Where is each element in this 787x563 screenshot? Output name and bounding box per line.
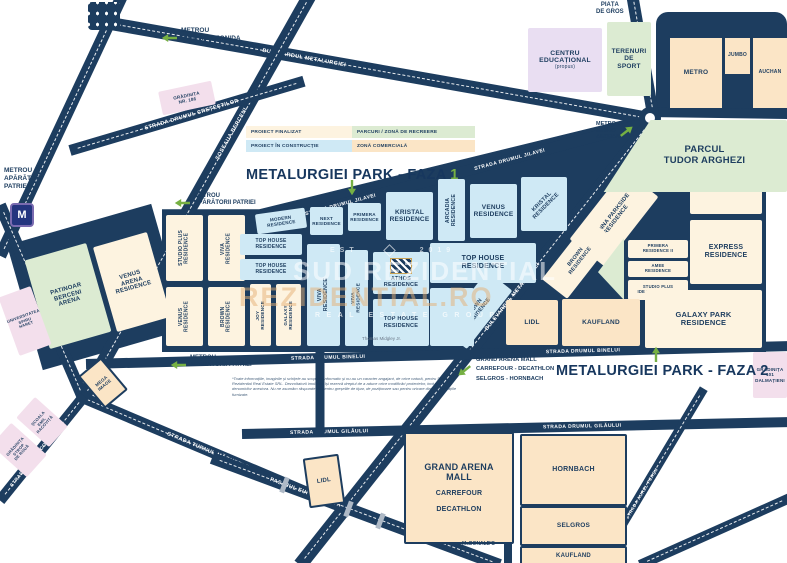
block-viva-residence-2: VIVA RESIDENCE [307,244,340,346]
block-top-house-residence: TOP HOUSE RESIDENCE [240,259,302,280]
block-label: PRIMERA RESIDENCE [350,212,379,222]
block-label: JOY RESIDENCE [255,301,265,330]
annotation-text: McDONALD'S [462,541,495,547]
road-label: STRADA DRUMUL GILĂULUI [290,428,369,436]
block-galaxy-park-residence: GALAXY PARK RESIDENCE [645,290,762,348]
block-galaxy-residence: GALAXY RESIDENCE [276,284,301,346]
block-label: NEXT RESIDENCE [312,216,341,226]
disclaimer-body: *Toate informațiile, imaginile și schițe… [232,376,456,397]
block-label: KRISTAL RESIDENCE [527,187,560,220]
block-auchan: AUCHAN [751,36,787,110]
block-kaufland: KAUFLAND [562,299,640,346]
block-grand-arena-mall: GRAND ARENA MALL CARREFOUR DECATHLON [404,432,514,544]
annotation-text: METROU APĂRĂTORI PATRIEI [4,167,43,190]
block-label: SELGROS [557,522,590,529]
block-label: GRĂDINIȚA STROP DE ROUĂ [6,437,32,464]
annotation-text: METRO JUMBO AUCHAN [596,121,620,140]
block-express-residence: EXPRESS RESIDENCE [690,220,762,284]
block-label: VENUS RESIDENCE [474,204,514,219]
arrow-up-icon [651,346,661,362]
title-text: METALURGIEI PARK - FAZA 2 [556,363,769,379]
map-canvas: BULEVARDUL METALURGIEI ȘOSEAUA BERCENI S… [0,0,787,563]
block-hornbach: HORNBACH [520,434,627,506]
block-kristal-residence-2: KRISTAL RESIDENCE [521,177,567,231]
block-centru-educational: CENTRU EDUCAȚIONAL (propus) [528,28,602,92]
block-label: TOP HOUSE RESIDENCE [384,316,419,329]
block-label: VENUS ARENA RESIDENCE [112,267,153,297]
road-label: ȘOSEAUA BERCENI [215,107,249,161]
arrow-left-icon [174,198,190,208]
block-lidl-south: LIDL [303,454,346,509]
block-label: STUDIO PLUS RESIDENCE [179,230,190,266]
road-bottom-right-diagonal [638,493,787,563]
metro-m-icon: M [10,203,34,227]
block-label: TOP HOUSE RESIDENCE [462,255,505,271]
block-label: VIVA RESIDENCE [317,278,329,311]
block-sublabel: (propus) [555,65,575,71]
legend-zona-comerciala: ZONĂ COMERCIALĂ [352,140,475,152]
block-joy-residence: JOY RESIDENCE [250,284,271,346]
block-label: TOP HOUSE RESIDENCE [255,239,286,250]
legend-proiect-finalizat: PROIECT FINALIZAT [246,126,352,138]
block-primera-residence: PRIMERA RESIDENCE [348,203,381,231]
block-arcadia-residence: ARCADIA RESIDENCE [438,179,465,241]
block-jumbo: JUMBO [723,36,752,76]
block-athos-residence: ATHOS RESIDENCE [373,252,429,294]
block-label: ARCADIA RESIDENCE [446,194,458,226]
title-faza-2: METALURGIEI PARK - FAZA 2 [556,363,769,379]
block-label: PRIMERA RESIDENCE II [643,244,673,253]
block-label: GALAXY PARK RESIDENCE [675,311,731,328]
label-small-street: Thomas Midgley Jr. [362,336,401,341]
block-label: BROWN RESIDENCE [221,301,232,332]
arrow-down-icon [347,180,357,196]
block-label: GRAND ARENA MALL [424,462,493,482]
block-amee-residence: AMEE RESIDENCE [628,261,688,277]
block-label: CENTRU EDUCAȚIONAL [539,50,591,65]
block-label: VIVA RESIDENCE [351,283,362,313]
block-label: KAUFLAND [556,553,591,560]
block-label: HORNBACH [552,466,594,474]
block-label: VENUS RESIDENCE [179,301,190,332]
road-label: STRADA DRUMUL GILĂULUI [543,423,622,431]
legend-label: PARCURI / ZONĂ DE RECREERE [357,130,437,135]
residential-block [430,288,474,346]
block-viva-residence-3: VIVA RESIDENCE [345,250,368,346]
block-label: KAUFLAND [582,319,620,326]
block-label: KRISTAL RESIDENCE [390,209,430,224]
block-label: ȘCOALA EMIL RACOVIȚĂ [29,409,54,435]
block-metro: METRO [668,36,724,110]
block-studio-plus-residence: STUDIO PLUS RESIDENCE [166,215,203,281]
block-lidl: LIDL [506,300,558,345]
block-label: MODERN RESIDENCE [266,214,296,228]
transit-depot-icon [88,2,120,30]
label-metrou-aparatorii-patriei-1: METROU APĂRĂTORII PATRIEI [194,193,256,207]
legend-parcuri: PARCURI / ZONĂ DE RECREERE [352,126,475,138]
block-next-residence: NEXT RESIDENCE [310,207,343,235]
block-venus-residence-2: VENUS RESIDENCE [470,184,517,238]
block-label: ATHOS RESIDENCE [384,276,418,289]
annotation-text: METROU APĂRĂTORII PATRIEI [190,355,252,368]
block-label: TERENURI DE SPORT [612,48,647,70]
label-grand-arena-pointer: GRAND ARENA MALL CARREFOUR - DECATHLON S… [476,356,554,384]
annotation-text: PIAȚA DE GROS [596,2,624,15]
block-venus-residence: VENUS RESIDENCE [166,287,203,346]
block-label: BROWN RESIDENCE [563,242,593,276]
label-mcdonalds: McDONALD'S [462,541,495,547]
block-terenuri-de-sport: TERENURI DE SPORT [607,22,651,96]
block-label: JUMBO [728,53,747,59]
block-label: VIVA RESIDENCE [221,233,232,264]
annotation-text: GRAND ARENA MALL CARREFOUR - DECATHLON S… [476,357,554,382]
road-label: STRADA DRUMUL BINELUI [291,354,366,362]
block-brown-residence: BROWN RESIDENCE [208,287,245,346]
legend-proiect-in-constructie: PROIECT ÎN CONSTRUCȚIE [246,140,352,152]
legend-label: PROIECT FINALIZAT [251,130,301,135]
legend-label: PROIECT ÎN CONSTRUCȚIE [251,144,319,149]
block-label: GALAXY RESIDENCE [283,301,293,330]
legend-label: ZONĂ COMERCIALĂ [357,144,407,149]
block-label: AUCHAN [759,70,782,76]
block-label: EXPRESS RESIDENCE [705,244,748,260]
annotation-text: METROU APĂRĂTORII PATRIEI [194,193,256,206]
metro-m-letter: M [17,209,26,221]
block-label: AMEE RESIDENCE [645,264,671,273]
block-label: PARCUL TUDOR ARGHEZI [664,145,745,166]
road-label: STRADA DRUMUL BINELUI [546,347,621,355]
annotation-text: Thomas Midgley Jr. [362,336,401,341]
arrow-left-icon [161,33,177,43]
arrow-left-icon [170,360,186,370]
block-label: METRO [684,69,708,76]
block-label: UNIVERSITATEA SPIRU HARET [7,309,44,333]
block-label: LIDL [317,477,332,486]
label-metrou-aparatorii-patriei-2: METROU APĂRĂTORII PATRIEI [190,355,252,369]
title-number: 1 [450,167,458,183]
annotation-text: METROU DIMITRIE LEONIDA [181,27,241,42]
block-kaufland-south: KAUFLAND [520,546,627,563]
label-metrou-dimitrie-leonida: METROU DIMITRIE LEONIDA [181,27,241,43]
block-label: PATINOAR BERCENI ARENA [50,282,86,310]
block-label: LIDL [524,319,539,326]
block-label: GRĂDINIȚA NR. 186 [173,90,201,105]
disclaimer-text: *Toate informațiile, imaginile și schițe… [232,376,464,397]
road-label: STRADA AUREL PERȘU [624,466,658,519]
block-label: TOP HOUSE RESIDENCE [255,264,286,275]
athos-logo-icon [390,258,412,274]
block-sublabel: CARREFOUR [436,490,483,498]
block-label: MEGA IMAGE [94,374,113,392]
label-metrou-aparatori-patriei-west: METROU APĂRĂTORI PATRIEI [4,167,43,190]
label-metro-jumbo-auchan: METRO JUMBO AUCHAN [596,121,620,141]
block-top-house-residence: TOP HOUSE RESIDENCE [240,234,302,255]
block-selgros: SELGROS [520,506,627,546]
block-kristal-residence: KRISTAL RESIDENCE [386,192,433,240]
block-sublabel: DECATHLON [436,506,481,514]
label-piata-de-gros: PIAȚA DE GROS [596,2,624,16]
block-primera-residence-2: PRIMERA RESIDENCE II [628,240,688,258]
